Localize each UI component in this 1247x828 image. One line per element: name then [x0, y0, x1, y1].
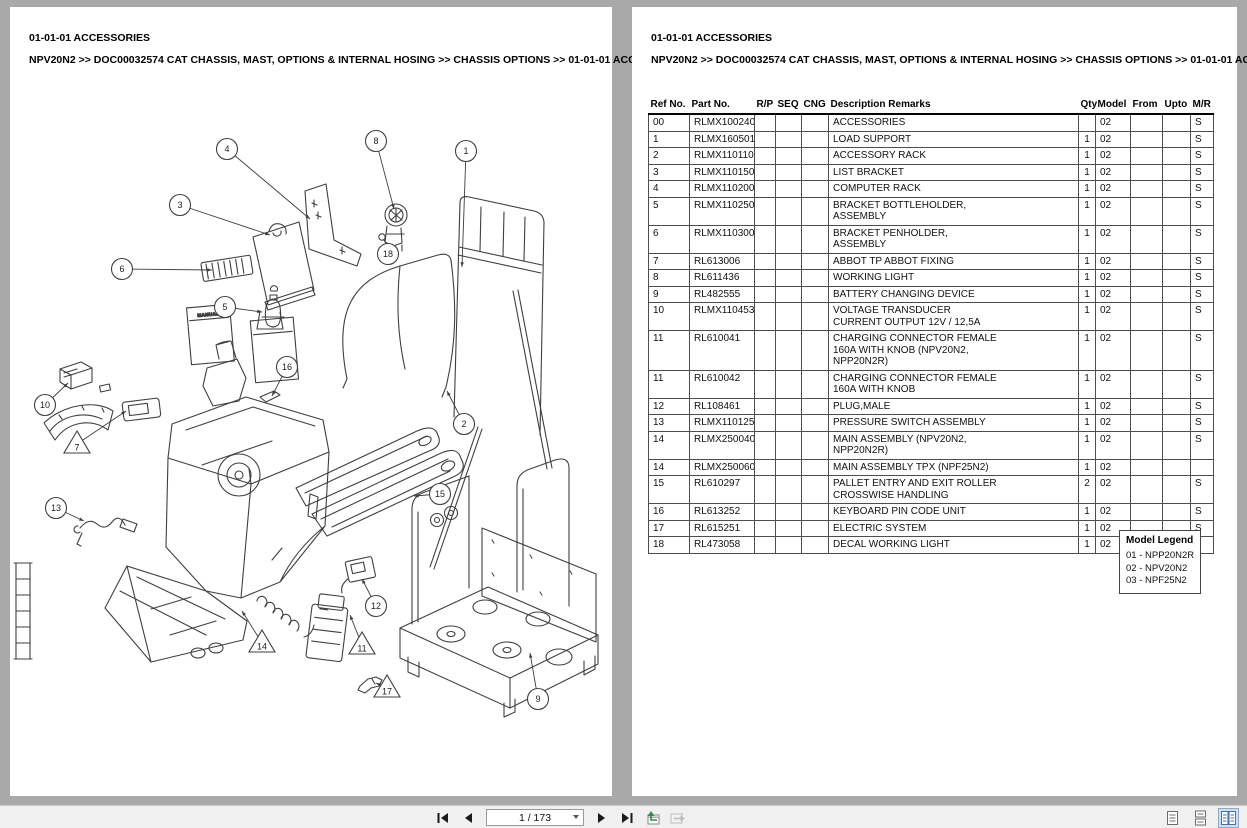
first-page-icon — [436, 812, 450, 824]
cell-part: RLMX110453 — [690, 303, 755, 331]
cell-desc: WORKING LIGHT — [829, 270, 1079, 287]
cell-desc: LOAD SUPPORT — [829, 131, 1079, 148]
cell-upto — [1163, 148, 1191, 165]
cell-seq — [776, 504, 802, 521]
table-row: 2RLMX110110ACCESSORY RACK102S — [649, 148, 1214, 165]
leader-arrowhead — [447, 391, 451, 396]
table-row: 00RLMX100240ACCESSORIES02S — [649, 114, 1214, 131]
table-row: 8RL611436WORKING LIGHT102S — [649, 270, 1214, 287]
cell-ref: 16 — [649, 504, 690, 521]
cell-mr: S — [1191, 431, 1214, 459]
callout-number: 13 — [51, 503, 61, 513]
callout-number: 8 — [373, 136, 378, 146]
cell-part: RL615251 — [690, 520, 755, 537]
cell-ref: 14 — [649, 459, 690, 476]
cell-qty: 1 — [1079, 164, 1096, 181]
cell-qty: 1 — [1079, 181, 1096, 198]
cell-desc: CHARGING CONNECTOR FEMALE 160A WITH KNOB — [829, 370, 1079, 398]
cell-rp — [755, 476, 776, 504]
page-layout-controls — [1162, 807, 1239, 828]
callout-number: 4 — [224, 144, 229, 154]
cell-desc: PLUG,MALE — [829, 398, 1079, 415]
column-header: SEQ — [776, 97, 802, 114]
voltage-transducer-art — [60, 362, 111, 392]
cell-ref: 00 — [649, 114, 690, 131]
cell-qty: 1 — [1079, 131, 1096, 148]
cell-rp — [755, 131, 776, 148]
cell-desc: LIST BRACKET — [829, 164, 1079, 181]
callout-number: 11 — [357, 644, 366, 654]
table-row: 15RL610297PALLET ENTRY AND EXIT ROLLER C… — [649, 476, 1214, 504]
column-header: R/P — [755, 97, 776, 114]
cell-upto — [1163, 114, 1191, 131]
previous-page-icon — [462, 812, 474, 824]
cell-model: 02 — [1096, 331, 1131, 371]
cell-rp — [755, 504, 776, 521]
cell-desc: KEYBOARD PIN CODE UNIT — [829, 504, 1079, 521]
two-page-view-button[interactable] — [1218, 808, 1239, 828]
pressure-switch-cable-art — [74, 518, 137, 546]
cell-upto — [1163, 504, 1191, 521]
viewer-toolbar: 1 / 173 — [0, 805, 1247, 828]
table-row: 11RL610041CHARGING CONNECTOR FEMALE 160A… — [649, 331, 1214, 371]
cell-upto — [1163, 286, 1191, 303]
next-page-icon — [596, 812, 608, 824]
callout-number: 5 — [222, 302, 227, 312]
cell-seq — [776, 431, 802, 459]
plug-art — [342, 556, 376, 593]
column-header: From — [1131, 97, 1163, 114]
cell-from — [1131, 286, 1163, 303]
cell-seq — [776, 164, 802, 181]
cell-seq — [776, 370, 802, 398]
cell-model: 02 — [1096, 114, 1131, 131]
cell-model: 02 — [1096, 415, 1131, 432]
parts-table-body: 00RLMX100240ACCESSORIES02S1RLMX160501LOA… — [649, 114, 1214, 553]
clipboard-art — [253, 222, 315, 310]
cell-model: 02 — [1096, 286, 1131, 303]
table-row: 14RLMX250040MAIN ASSEMBLY (NPV20N2, NPP2… — [649, 431, 1214, 459]
cell-seq — [776, 303, 802, 331]
breadcrumb: NPV20N2 >> DOC00032574 CAT CHASSIS, MAST… — [651, 54, 1247, 66]
cell-ref: 14 — [649, 431, 690, 459]
cell-rp — [755, 286, 776, 303]
callout-layer: 481318651610721513121411179 — [35, 131, 549, 710]
side-rail-art — [14, 563, 32, 659]
callout-number: 18 — [383, 249, 393, 259]
cell-mr: S — [1191, 398, 1214, 415]
cell-rp — [755, 459, 776, 476]
cell-desc: CHARGING CONNECTOR FEMALE 160A WITH KNOB… — [829, 331, 1079, 371]
cell-from — [1131, 270, 1163, 287]
cell-desc: VOLTAGE TRANSDUCER CURRENT OUTPUT 12V / … — [829, 303, 1079, 331]
cell-model: 02 — [1096, 148, 1131, 165]
cell-desc: ELECTRIC SYSTEM — [829, 520, 1079, 537]
cell-qty: 1 — [1079, 270, 1096, 287]
cell-mr: S — [1191, 181, 1214, 198]
cell-rp — [755, 270, 776, 287]
cell-cng — [802, 537, 829, 554]
cell-cng — [802, 131, 829, 148]
cell-qty: 1 — [1079, 197, 1096, 225]
cell-cng — [802, 197, 829, 225]
leader-arrowhead — [460, 262, 463, 267]
page-title: 01-01-01 ACCESSORIES — [651, 32, 772, 44]
cell-rp — [755, 164, 776, 181]
cell-part: RL613252 — [690, 504, 755, 521]
cell-upto — [1163, 431, 1191, 459]
cell-model: 02 — [1096, 370, 1131, 398]
cell-rp — [755, 331, 776, 371]
cell-mr: S — [1191, 476, 1214, 504]
cell-cng — [802, 431, 829, 459]
table-header-row: Ref No.Part No.R/PSEQCNGDescription Rema… — [649, 97, 1214, 114]
cell-part: RL473058 — [690, 537, 755, 554]
first-page-button[interactable] — [432, 808, 454, 827]
cell-qty: 1 — [1079, 331, 1096, 371]
cell-cng — [802, 331, 829, 371]
handle-frame-art — [343, 254, 455, 397]
cell-part: RL613006 — [690, 253, 755, 270]
table-row: 6RLMX110300BRACKET PENHOLDER, ASSEMBLY10… — [649, 225, 1214, 253]
cell-part: RLMX110150 — [690, 164, 755, 181]
cell-cng — [802, 476, 829, 504]
cell-from — [1131, 431, 1163, 459]
cell-qty: 1 — [1079, 520, 1096, 537]
cell-upto — [1163, 370, 1191, 398]
cell-model: 02 — [1096, 431, 1131, 459]
cell-from — [1131, 476, 1163, 504]
cell-cng — [802, 398, 829, 415]
cell-ref: 18 — [649, 537, 690, 554]
cell-seq — [776, 331, 802, 371]
cell-part: RLMX110250 — [690, 197, 755, 225]
cell-from — [1131, 164, 1163, 181]
cell-cng — [802, 181, 829, 198]
cell-qty: 1 — [1079, 225, 1096, 253]
cell-rp — [755, 370, 776, 398]
chevron-down-icon — [573, 815, 579, 819]
next-view-icon — [669, 810, 686, 826]
previous-view-button[interactable] — [641, 808, 663, 827]
cell-ref: 4 — [649, 181, 690, 198]
cell-mr: S — [1191, 504, 1214, 521]
cell-part: RL610297 — [690, 476, 755, 504]
cell-cng — [802, 415, 829, 432]
cell-part: RLMX110125 — [690, 415, 755, 432]
leader-arrowhead — [529, 653, 532, 658]
cell-mr: S — [1191, 286, 1214, 303]
two-page-view-icon — [1220, 810, 1237, 826]
cell-model: 02 — [1096, 131, 1131, 148]
cell-qty: 1 — [1079, 286, 1096, 303]
leader-arrowhead — [79, 517, 84, 521]
cell-qty: 1 — [1079, 148, 1096, 165]
cell-ref: 7 — [649, 253, 690, 270]
cell-part: RL108461 — [690, 398, 755, 415]
cell-upto — [1163, 303, 1191, 331]
cell-model: 02 — [1096, 164, 1131, 181]
cell-from — [1131, 504, 1163, 521]
leader-arrowhead — [207, 268, 212, 271]
table-row: 7RL613006ABBOT TP ABBOT FIXING102S — [649, 253, 1214, 270]
cell-upto — [1163, 331, 1191, 371]
cell-seq — [776, 398, 802, 415]
callout-number: 6 — [119, 264, 124, 274]
next-page-button[interactable] — [591, 808, 613, 827]
table-row: 3RLMX110150LIST BRACKET102S — [649, 164, 1214, 181]
page-right-parts-list: 01-01-01 ACCESSORIES NPV20N2 >> DOC00032… — [632, 7, 1237, 796]
cell-from — [1131, 131, 1163, 148]
cell-desc: DECAL WORKING LIGHT — [829, 537, 1079, 554]
cell-part: RL611436 — [690, 270, 755, 287]
cell-mr: S — [1191, 225, 1214, 253]
cell-from — [1131, 415, 1163, 432]
cell-rp — [755, 148, 776, 165]
cell-ref: 6 — [649, 225, 690, 253]
cell-part: RLMX110200 — [690, 181, 755, 198]
cell-qty: 1 — [1079, 303, 1096, 331]
table-row: 10RLMX110453VOLTAGE TRANSDUCER CURRENT O… — [649, 303, 1214, 331]
column-header: Model — [1096, 97, 1131, 114]
cell-from — [1131, 181, 1163, 198]
cell-seq — [776, 181, 802, 198]
callout-number: 3 — [177, 200, 182, 210]
cell-model: 02 — [1096, 504, 1131, 521]
table-row: 14RLMX250060MAIN ASSEMBLY TPX (NPF25N2)1… — [649, 459, 1214, 476]
table-row: 12RL108461PLUG,MALE102S — [649, 398, 1214, 415]
leader-line — [122, 269, 212, 270]
cell-part: RLMX160501 — [690, 131, 755, 148]
cell-ref: 10 — [649, 303, 690, 331]
cell-rp — [755, 398, 776, 415]
cell-cng — [802, 253, 829, 270]
cell-mr: S — [1191, 270, 1214, 287]
cell-upto — [1163, 398, 1191, 415]
cell-upto — [1163, 459, 1191, 476]
cell-ref: 8 — [649, 270, 690, 287]
cell-cng — [802, 303, 829, 331]
cell-from — [1131, 253, 1163, 270]
table-row: 13RLMX110125PRESSURE SWITCH ASSEMBLY102S — [649, 415, 1214, 432]
cell-upto — [1163, 164, 1191, 181]
cell-qty: 1 — [1079, 398, 1096, 415]
cell-from — [1131, 398, 1163, 415]
cell-desc: MAIN ASSEMBLY (NPV20N2, NPP20N2R) — [829, 431, 1079, 459]
model-legend-item: 01 - NPP20N2R — [1126, 550, 1195, 563]
exploded-parts-diagram: MANUAL — [10, 7, 612, 796]
cell-ref: 17 — [649, 520, 690, 537]
cell-desc: PRESSURE SWITCH ASSEMBLY — [829, 415, 1079, 432]
cell-part: RL482555 — [690, 286, 755, 303]
callout-number: 2 — [461, 419, 466, 429]
cell-upto — [1163, 131, 1191, 148]
cell-seq — [776, 148, 802, 165]
cell-qty — [1079, 114, 1096, 131]
page-left-diagram: 01-01-01 ACCESSORIES NPV20N2 >> DOC00032… — [10, 7, 612, 796]
pallet-truck-art — [105, 341, 329, 662]
callout-number: 15 — [435, 489, 445, 499]
cell-qty: 1 — [1079, 504, 1096, 521]
cell-part: RL610042 — [690, 370, 755, 398]
cell-upto — [1163, 197, 1191, 225]
abbot-box-art — [122, 398, 161, 421]
cell-from — [1131, 197, 1163, 225]
cell-rp — [755, 225, 776, 253]
table-row: 5RLMX110250BRACKET BOTTLEHOLDER, ASSEMBL… — [649, 197, 1214, 225]
cell-mr: S — [1191, 303, 1214, 331]
pdf-viewer-window: 01-01-01 ACCESSORIES NPV20N2 >> DOC00032… — [0, 0, 1247, 828]
cell-seq — [776, 253, 802, 270]
cell-cng — [802, 286, 829, 303]
cell-desc: ACCESSORY RACK — [829, 148, 1079, 165]
cell-desc: ABBOT TP ABBOT FIXING — [829, 253, 1079, 270]
cell-ref: 9 — [649, 286, 690, 303]
cell-part: RLMX110300 — [690, 225, 755, 253]
cell-desc: BRACKET PENHOLDER, ASSEMBLY — [829, 225, 1079, 253]
cell-cng — [802, 225, 829, 253]
cell-cng — [802, 504, 829, 521]
cell-from — [1131, 459, 1163, 476]
leader-line — [227, 149, 310, 219]
cell-qty: 1 — [1079, 537, 1096, 554]
next-view-button[interactable] — [666, 808, 688, 827]
cell-seq — [776, 270, 802, 287]
cell-mr: S — [1191, 114, 1214, 131]
column-header: Part No. — [690, 97, 755, 114]
callout-number: 12 — [371, 601, 381, 611]
cell-rp — [755, 114, 776, 131]
cell-rp — [755, 303, 776, 331]
callout-number: 10 — [40, 400, 50, 410]
computer-rack-bracket-art — [305, 184, 361, 266]
single-page-view-icon — [1166, 810, 1179, 826]
cell-upto — [1163, 270, 1191, 287]
cell-qty: 1 — [1079, 431, 1096, 459]
cell-desc: COMPUTER RACK — [829, 181, 1079, 198]
callout-number: 9 — [535, 694, 540, 704]
cell-mr: S — [1191, 148, 1214, 165]
cell-model: 02 — [1096, 253, 1131, 270]
column-header: CNG — [802, 97, 829, 114]
leader-line — [77, 411, 126, 444]
cell-rp — [755, 253, 776, 270]
continuous-view-button[interactable] — [1190, 808, 1211, 828]
table-row: 11RL610042CHARGING CONNECTOR FEMALE 160A… — [649, 370, 1214, 398]
cell-part: RLMX100240 — [690, 114, 755, 131]
cell-model: 02 — [1096, 270, 1131, 287]
leader-line — [180, 205, 270, 235]
page-indicator: 1 / 173 — [519, 812, 551, 824]
fork-arms-art — [296, 428, 463, 536]
cell-cng — [802, 370, 829, 398]
cell-mr — [1191, 459, 1214, 476]
column-header: Description Remarks — [829, 97, 1079, 114]
table-row: 1RLMX160501LOAD SUPPORT102S — [649, 131, 1214, 148]
cell-part: RLMX110110 — [690, 148, 755, 165]
cell-ref: 3 — [649, 164, 690, 181]
cell-cng — [802, 520, 829, 537]
cell-model: 02 — [1096, 225, 1131, 253]
previous-page-button[interactable] — [457, 808, 479, 827]
cell-ref: 1 — [649, 131, 690, 148]
cell-ref: 11 — [649, 331, 690, 371]
column-header: Ref No. — [649, 97, 690, 114]
cell-mr: S — [1191, 370, 1214, 398]
cell-qty: 2 — [1079, 476, 1096, 504]
previous-view-icon — [644, 810, 661, 826]
cell-desc: BATTERY CHANGING DEVICE — [829, 286, 1079, 303]
cell-seq — [776, 520, 802, 537]
cell-qty: 1 — [1079, 415, 1096, 432]
last-page-button[interactable] — [616, 808, 638, 827]
cell-upto — [1163, 253, 1191, 270]
cell-cng — [802, 164, 829, 181]
table-row: 4RLMX110200COMPUTER RACK102S — [649, 181, 1214, 198]
single-page-view-button[interactable] — [1162, 808, 1183, 828]
last-page-icon — [620, 812, 634, 824]
cell-seq — [776, 197, 802, 225]
page-navigation: 1 / 173 — [432, 807, 688, 828]
column-header: Upto — [1163, 97, 1191, 114]
table-row: 9RL482555BATTERY CHANGING DEVICE102S — [649, 286, 1214, 303]
cell-upto — [1163, 225, 1191, 253]
cell-seq — [776, 114, 802, 131]
cell-rp — [755, 197, 776, 225]
table-row: 16RL613252KEYBOARD PIN CODE UNIT102S — [649, 504, 1214, 521]
cell-seq — [776, 476, 802, 504]
cell-seq — [776, 131, 802, 148]
cell-upto — [1163, 476, 1191, 504]
leader-line — [462, 151, 466, 267]
cell-cng — [802, 270, 829, 287]
cell-ref: 2 — [649, 148, 690, 165]
cell-from — [1131, 370, 1163, 398]
cell-mr: S — [1191, 253, 1214, 270]
cell-seq — [776, 537, 802, 554]
cell-from — [1131, 148, 1163, 165]
cell-cng — [802, 148, 829, 165]
cell-desc: BRACKET BOTTLEHOLDER, ASSEMBLY — [829, 197, 1079, 225]
continuous-view-icon — [1194, 810, 1207, 826]
penholder-bracket-art — [260, 391, 280, 402]
cell-model: 02 — [1096, 398, 1131, 415]
cell-mr: S — [1191, 164, 1214, 181]
cell-model: 02 — [1096, 181, 1131, 198]
cell-ref: 5 — [649, 197, 690, 225]
cell-model: 02 — [1096, 476, 1131, 504]
leader-arrowhead — [350, 615, 353, 620]
cell-seq — [776, 225, 802, 253]
cell-rp — [755, 520, 776, 537]
parts-table: Ref No.Part No.R/PSEQCNGDescription Rema… — [648, 97, 1214, 554]
cell-part: RLMX250040 — [690, 431, 755, 459]
callout-number: 14 — [257, 642, 267, 652]
cell-upto — [1163, 181, 1191, 198]
model-legend-title: Model Legend — [1126, 535, 1195, 546]
column-header: M/R — [1191, 97, 1214, 114]
callout-number: 1 — [463, 146, 468, 156]
page-number-dropdown[interactable]: 1 / 173 — [486, 809, 584, 826]
accessory-rack-art — [201, 255, 253, 282]
cell-rp — [755, 537, 776, 554]
cell-model: 02 — [1096, 459, 1131, 476]
cell-desc: MAIN ASSEMBLY TPX (NPF25N2) — [829, 459, 1079, 476]
cell-ref: 15 — [649, 476, 690, 504]
cell-mr: S — [1191, 331, 1214, 371]
cell-cng — [802, 459, 829, 476]
cell-upto — [1163, 415, 1191, 432]
